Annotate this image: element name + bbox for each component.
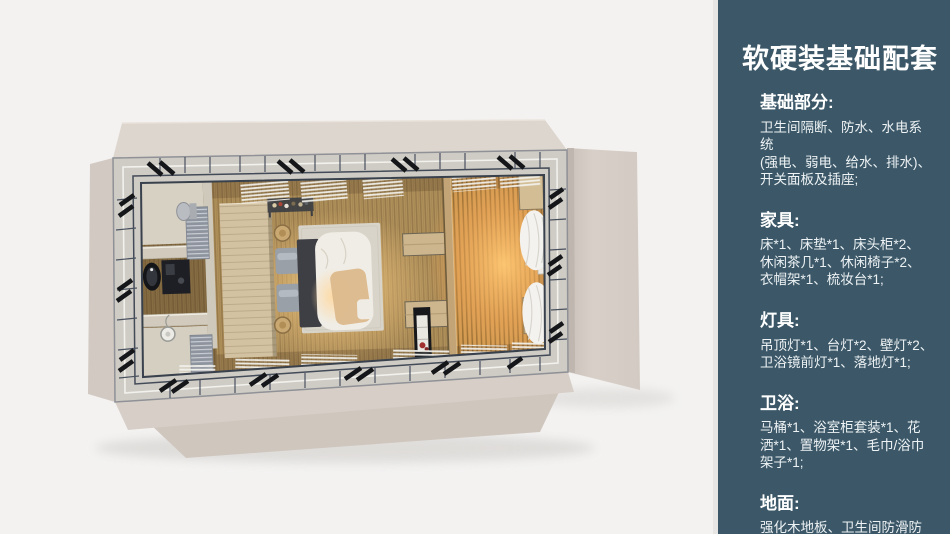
headboard-panel xyxy=(219,202,276,358)
section-heading: 灯具: xyxy=(760,312,934,331)
panel-sections: 基础部分: 卫生间隔断、防水、水电系统 (强电、弱电、给水、排水)、 开关面板及… xyxy=(760,94,934,534)
section-body: 床*1、床垫*1、床头柜*2、 休闲茶几*1、休闲椅子*2、 衣帽架*1、梳妆台… xyxy=(760,236,934,289)
toilet xyxy=(176,202,197,221)
section-heading: 卫浴: xyxy=(760,395,934,414)
bed-pillow-2 xyxy=(276,283,301,312)
spec-section: 灯具: 吊顶灯*1、台灯*2、壁灯*2、 卫浴镜前灯*1、落地灯*1; xyxy=(760,312,934,372)
right-wall-flap xyxy=(567,148,640,390)
section-heading: 地面: xyxy=(760,495,934,514)
left-wall-flap xyxy=(88,158,115,402)
section-body: 卫生间隔断、防水、水电系统 (强电、弱电、给水、排水)、 开关面板及插座; xyxy=(760,119,934,189)
slide: 软硬装基础配套 基础部分: 卫生间隔断、防水、水电系统 (强电、弱电、给水、排水… xyxy=(0,0,950,534)
floorplan-render xyxy=(0,0,718,534)
spec-section: 家具: 床*1、床垫*1、床头柜*2、 休闲茶几*1、休闲椅子*2、 衣帽架*1… xyxy=(760,212,934,289)
info-panel: 软硬装基础配套 基础部分: 卫生间隔断、防水、水电系统 (强电、弱电、给水、排水… xyxy=(718,0,950,534)
section-heading: 家具: xyxy=(760,212,934,231)
bathroom-vanity xyxy=(161,259,190,294)
section-body: 吊顶灯*1、台灯*2、壁灯*2、 卫浴镜前灯*1、落地灯*1; xyxy=(760,337,934,372)
bed-cushion xyxy=(357,299,374,320)
section-heading: 基础部分: xyxy=(760,94,934,113)
bed-pillow-1 xyxy=(275,248,300,275)
panel-title: 软硬装基础配套 xyxy=(742,44,938,75)
spec-section: 基础部分: 卫生间隔断、防水、水电系统 (强电、弱电、给水、排水)、 开关面板及… xyxy=(760,94,934,189)
section-body: 马桶*1、浴室柜套装*1、花 洒*1、置物架*1、毛巾/浴巾 架子*1; xyxy=(760,419,934,472)
spec-section: 地面: 强化木地板、卫生间防滑防潮 石塑板; xyxy=(760,495,934,534)
section-body: 强化木地板、卫生间防滑防潮 石塑板; xyxy=(760,519,934,534)
spec-section: 卫浴: 马桶*1、浴室柜套装*1、花 洒*1、置物架*1、毛巾/浴巾 架子*1; xyxy=(760,395,934,472)
